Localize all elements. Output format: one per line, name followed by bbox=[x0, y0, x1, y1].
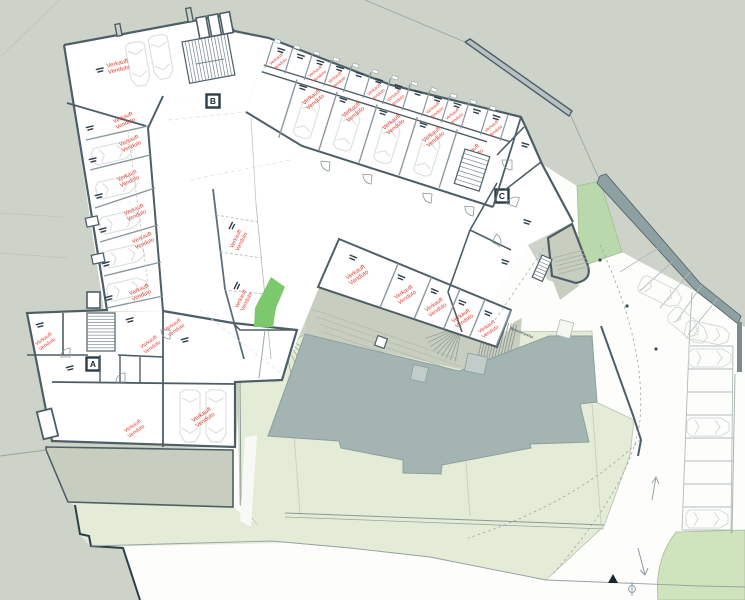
svg-text:B: B bbox=[210, 96, 216, 106]
svg-text:A: A bbox=[90, 359, 96, 369]
svg-text:C: C bbox=[499, 191, 505, 201]
